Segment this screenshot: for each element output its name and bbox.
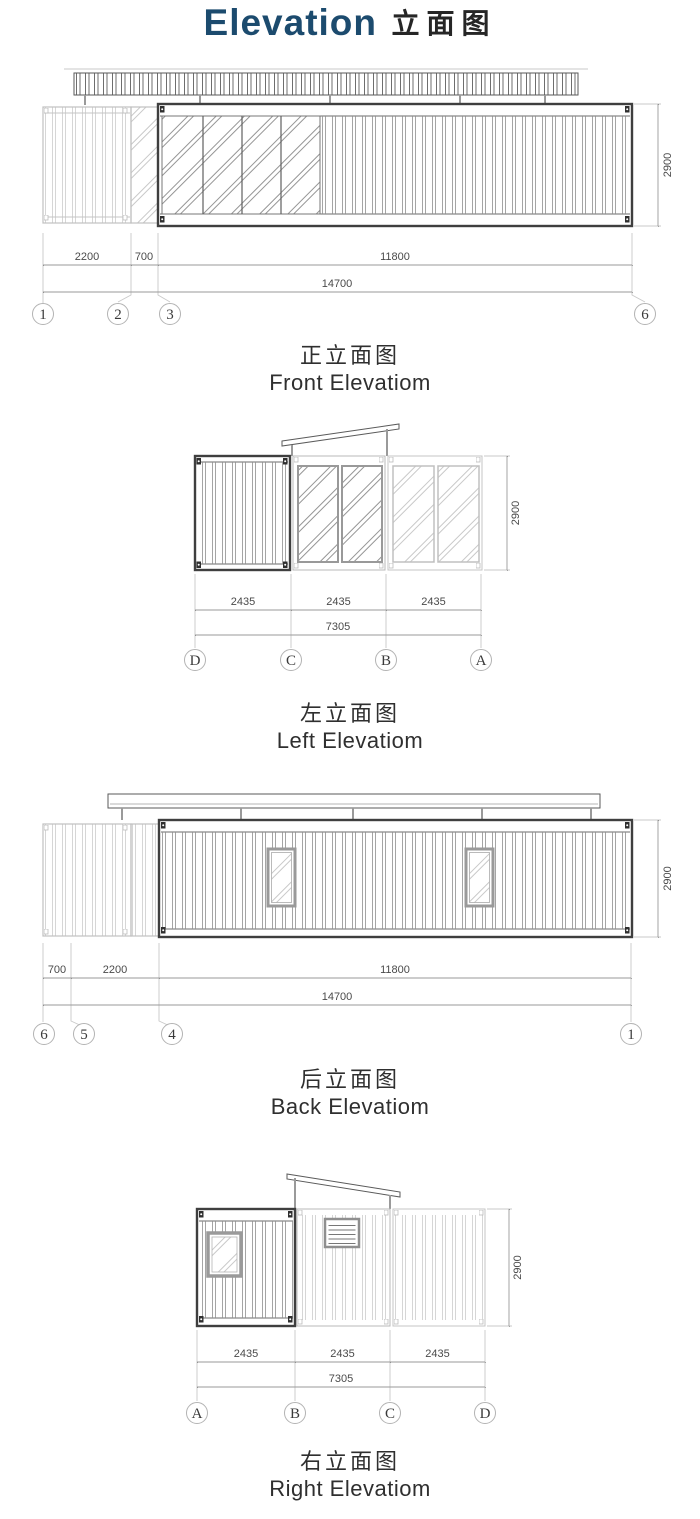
back-dim-1: 2200 xyxy=(103,964,127,976)
front-caption-zh: 正立面图 xyxy=(0,342,700,369)
back-elevation-drawing: 2900 700 2200 11800 14700 6 5 4 1 xyxy=(20,780,700,1070)
front-dim-0: 2200 xyxy=(75,251,99,263)
left-elevation-drawing: 2900 2435 2435 2435 7305 D C B A xyxy=(150,415,570,685)
right-dimensions: 2435 2435 2435 7305 xyxy=(194,1330,488,1401)
left-total-dim: 7305 xyxy=(326,621,350,633)
corrugated-wall xyxy=(197,462,288,564)
front-canopy xyxy=(64,69,588,105)
right-dim-2: 2435 xyxy=(425,1348,449,1360)
grid-label: D xyxy=(480,1406,491,1422)
side-container-body xyxy=(43,824,131,936)
front-elevation-drawing: 2900 2200 700 11800 14700 1 2 3 6 xyxy=(20,52,700,342)
left-unit-d xyxy=(195,456,290,570)
right-unit-a xyxy=(197,1209,295,1326)
right-caption-en: Right Elevatiom xyxy=(0,1475,700,1502)
front-corrugated-wall xyxy=(320,116,628,214)
sloped-roof-beam xyxy=(287,1174,400,1197)
grid-label: 2 xyxy=(114,307,122,323)
grid-label: 5 xyxy=(80,1027,88,1043)
front-height-dimension: 2900 xyxy=(634,101,674,229)
grid-label: 6 xyxy=(641,307,649,323)
front-dim-2: 11800 xyxy=(380,251,410,263)
left-caption-en: Left Elevatiom xyxy=(0,727,700,754)
front-caption: 正立面图 Front Elevatiom xyxy=(0,342,700,396)
left-unit-b xyxy=(388,456,482,570)
grid-label: 3 xyxy=(166,307,174,323)
left-unit-c xyxy=(293,456,385,570)
sheet-title-zh: 立面图 xyxy=(391,2,496,42)
grid-label: 1 xyxy=(627,1027,635,1043)
left-height-value: 2900 xyxy=(510,501,522,525)
back-dim-0: 700 xyxy=(48,964,66,976)
back-height-dimension: 2900 xyxy=(634,817,674,940)
sheet-title: Elevation 立面图 xyxy=(0,2,700,44)
back-dimensions: 700 2200 11800 14700 xyxy=(40,943,634,1027)
back-side-container xyxy=(43,824,131,936)
front-height-value: 2900 xyxy=(662,153,674,177)
grid-label: 4 xyxy=(168,1027,176,1043)
right-unit-c xyxy=(393,1209,485,1326)
front-dim-1: 700 xyxy=(135,251,153,263)
right-dim-1: 2435 xyxy=(330,1348,354,1360)
grid-label: B xyxy=(381,653,391,669)
right-elevation-drawing: 2900 2435 2435 2435 7305 A B C D xyxy=(150,1165,570,1435)
grid-label: A xyxy=(476,653,487,669)
back-caption-zh: 后立面图 xyxy=(0,1066,700,1093)
sheet-title-en: Elevation xyxy=(204,2,378,44)
back-corrugated-wall xyxy=(161,832,630,929)
front-glass-wall xyxy=(162,116,320,214)
back-height-value: 2900 xyxy=(662,866,674,890)
left-dimensions: 2435 2435 2435 7305 xyxy=(192,574,484,648)
front-dimensions: 2200 700 11800 14700 xyxy=(40,233,645,303)
grid-label: B xyxy=(290,1406,300,1422)
right-unit-b xyxy=(297,1209,390,1326)
left-height-dimension: 2900 xyxy=(484,453,522,573)
right-caption: 右立面图 Right Elevatiom xyxy=(0,1448,700,1502)
left-grid-bubbles: D C B A xyxy=(185,650,492,671)
back-main-container xyxy=(159,820,632,937)
right-roof xyxy=(287,1174,400,1209)
back-caption-en: Back Elevatiom xyxy=(0,1093,700,1120)
canopy-slat-band xyxy=(74,73,578,95)
grid-label: C xyxy=(286,653,296,669)
back-window-2 xyxy=(466,849,493,906)
grid-label: 1 xyxy=(39,307,47,323)
right-height-value: 2900 xyxy=(512,1255,524,1279)
glass-door-panel xyxy=(298,466,338,562)
glass-door-panel xyxy=(342,466,382,562)
back-canopy xyxy=(108,794,600,820)
front-main-container xyxy=(158,104,632,226)
grid-label: A xyxy=(192,1406,203,1422)
canopy-slab xyxy=(108,794,600,808)
left-dim-2: 2435 xyxy=(421,596,445,608)
grid-label: C xyxy=(385,1406,395,1422)
front-caption-en: Front Elevatiom xyxy=(0,369,700,396)
right-caption-zh: 右立面图 xyxy=(0,1448,700,1475)
right-total-dim: 7305 xyxy=(329,1373,353,1385)
sloped-roof-beam xyxy=(282,424,399,446)
corrugated-wall-light xyxy=(395,1215,483,1320)
back-strip xyxy=(131,824,159,936)
left-roof xyxy=(282,424,399,456)
drawing-sheet: Elevation 立面图 xyxy=(0,0,700,1519)
right-grid-bubbles: A B C D xyxy=(187,1403,496,1424)
left-caption-zh: 左立面图 xyxy=(0,700,700,727)
back-total-dim: 14700 xyxy=(322,991,353,1003)
front-side-container xyxy=(43,107,131,223)
left-caption: 左立面图 Left Elevatiom xyxy=(0,700,700,754)
right-height-dimension: 2900 xyxy=(487,1206,524,1329)
canopy-posts xyxy=(122,808,591,820)
back-window-1 xyxy=(268,849,295,906)
left-dim-0: 2435 xyxy=(231,596,255,608)
glass-door-panel xyxy=(393,466,434,562)
grid-label: 6 xyxy=(40,1027,48,1043)
left-dim-1: 2435 xyxy=(326,596,350,608)
back-dim-2: 11800 xyxy=(380,964,410,976)
front-total-dim: 14700 xyxy=(322,278,353,290)
grid-label: D xyxy=(190,653,201,669)
front-grid-bubbles: 1 2 3 6 xyxy=(33,304,656,325)
side-container-body xyxy=(43,107,131,223)
back-grid-bubbles: 6 5 4 1 xyxy=(34,1024,642,1045)
right-dim-0: 2435 xyxy=(234,1348,258,1360)
back-caption: 后立面图 Back Elevatiom xyxy=(0,1066,700,1120)
front-glass-strip xyxy=(131,107,158,223)
glass-door-panel xyxy=(438,466,479,562)
louver-vent xyxy=(325,1219,359,1247)
right-window xyxy=(208,1233,241,1276)
